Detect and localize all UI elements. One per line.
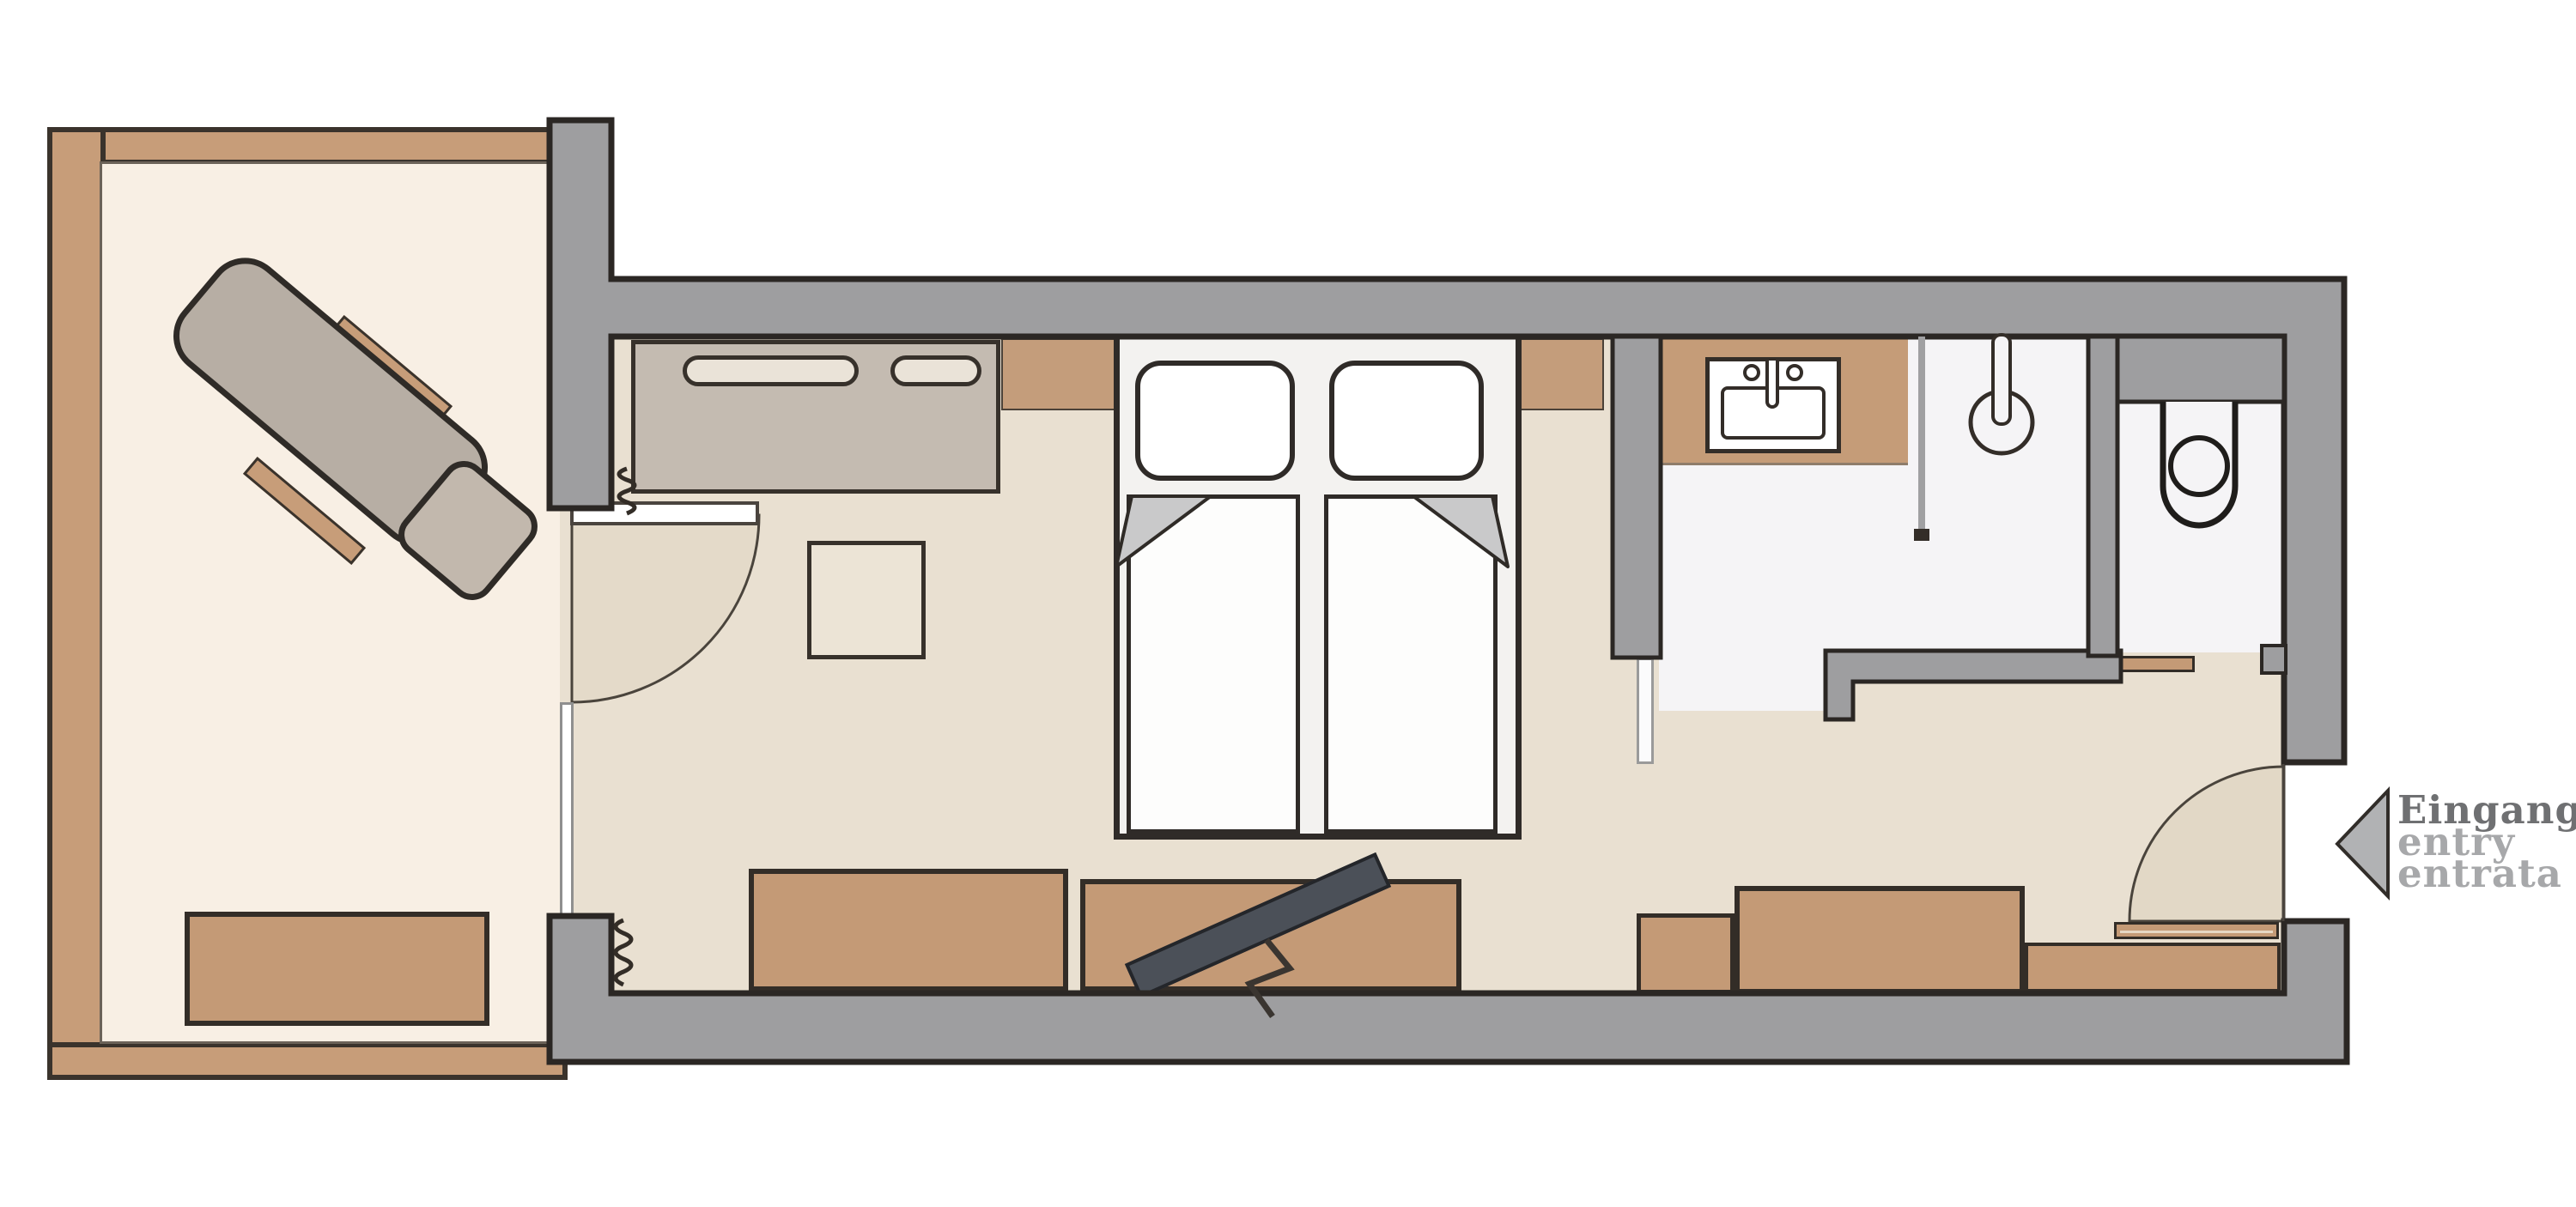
entry-arrow-icon	[2337, 791, 2388, 896]
tap-icon	[1786, 364, 1803, 381]
wc-floor	[2117, 337, 2286, 652]
balcony-frame-top	[47, 127, 554, 165]
balcony-frame-left	[47, 127, 106, 1080]
entry-door-leaf	[2114, 922, 2279, 939]
entry-bench-icon	[2025, 943, 2281, 992]
headboard-right	[1518, 338, 1604, 410]
sideboard-icon	[749, 869, 1068, 992]
duvet-icon	[1127, 494, 1300, 834]
tap-icon	[1743, 364, 1760, 381]
hotel-room-floorplan: Eingang entry entrata	[0, 0, 2576, 1207]
luggage-bench-icon	[1735, 886, 2025, 994]
wc-sliding-door-leaf	[2040, 656, 2195, 672]
balcony-door-leaf	[570, 501, 759, 525]
headboard-left	[1001, 338, 1116, 410]
glass-panel-icon	[1637, 658, 1654, 764]
desk-icon	[807, 541, 926, 659]
entrance-label-block: Eingang entry entrata	[2397, 794, 2576, 889]
balcony-bench-icon	[185, 912, 489, 1026]
entry-door-leaf-groove	[2120, 931, 2273, 933]
entrance-label-italian: entrata	[2397, 858, 2576, 889]
pillow-icon	[1135, 361, 1295, 481]
balcony-frame-bottom	[47, 1042, 568, 1080]
duvet-icon	[1324, 494, 1498, 834]
pillow-icon	[1329, 361, 1484, 481]
seat-block-icon	[1637, 913, 1735, 994]
faucet-spout-icon	[1765, 361, 1779, 409]
balcony-window	[560, 702, 574, 917]
wardrobe-handle-icon	[890, 355, 981, 386]
wardrobe-handle-icon	[683, 355, 859, 386]
